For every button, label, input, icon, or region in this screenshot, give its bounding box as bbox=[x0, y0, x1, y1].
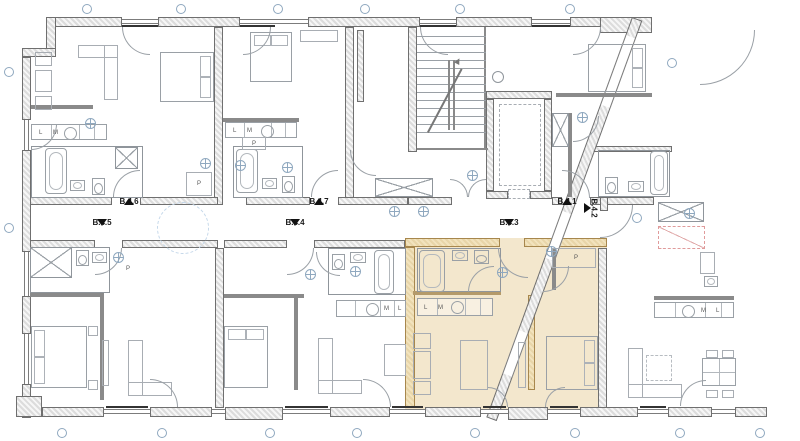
wall bbox=[16, 396, 42, 417]
grid-marker bbox=[57, 428, 67, 438]
furniture-symbol bbox=[384, 344, 406, 376]
shaft-cross-symbol bbox=[375, 178, 433, 197]
furniture-symbol bbox=[518, 342, 526, 388]
wall bbox=[22, 57, 31, 120]
wall bbox=[224, 240, 287, 248]
appliance-letter: M bbox=[53, 130, 58, 136]
furniture-symbol bbox=[413, 333, 431, 349]
furniture-symbol bbox=[700, 252, 715, 274]
entry-direction-triangle bbox=[562, 198, 572, 205]
wardrobe-dashed-symbol bbox=[658, 226, 705, 249]
grid-marker bbox=[360, 4, 370, 14]
door-arc bbox=[450, 179, 468, 197]
grid-marker bbox=[82, 4, 92, 14]
bed-symbol bbox=[160, 52, 214, 102]
window bbox=[24, 120, 29, 150]
appliance-letter: L bbox=[716, 308, 719, 314]
grid-marker bbox=[352, 428, 362, 438]
bathtub-symbol bbox=[650, 151, 668, 195]
furniture-symbol bbox=[88, 326, 98, 336]
furniture-symbol bbox=[706, 390, 718, 398]
partition-wall bbox=[417, 148, 488, 150]
appliance-letter: M bbox=[701, 308, 706, 314]
grid-marker bbox=[667, 58, 677, 68]
door-arc bbox=[316, 252, 340, 276]
wall bbox=[48, 17, 122, 27]
window bbox=[390, 409, 425, 414]
wall bbox=[580, 407, 638, 417]
threshold bbox=[106, 406, 148, 408]
wall bbox=[308, 17, 420, 27]
entry-direction-triangle bbox=[290, 219, 300, 226]
shaft bbox=[552, 113, 569, 147]
grid-marker bbox=[4, 67, 14, 77]
kitchen-counter-symbol bbox=[417, 298, 493, 316]
unit-label-u46: B.4.6 bbox=[112, 198, 146, 206]
window bbox=[283, 409, 330, 414]
bed-symbol bbox=[31, 326, 87, 388]
appliance-letter: P bbox=[574, 255, 578, 261]
elevator-door bbox=[508, 189, 530, 199]
unit-label-u43: B.4.3 bbox=[492, 219, 526, 227]
appliance-letter: P bbox=[252, 141, 256, 147]
partition-wall bbox=[30, 293, 104, 297]
furniture-symbol bbox=[722, 350, 734, 358]
grid-marker bbox=[675, 428, 685, 438]
window bbox=[212, 409, 225, 414]
highlighted-unit-wall bbox=[524, 238, 607, 247]
entry-direction-triangle bbox=[97, 219, 107, 226]
door-tag-marker bbox=[497, 267, 508, 278]
furniture-symbol bbox=[35, 70, 52, 92]
appliance-letter: M bbox=[247, 128, 252, 134]
unit-label-u45: B.4.5 bbox=[85, 219, 119, 227]
door-tag-marker bbox=[282, 162, 293, 173]
entry-direction-triangle bbox=[584, 203, 591, 213]
sink-symbol bbox=[262, 178, 277, 189]
toilet-symbol bbox=[92, 178, 105, 195]
window bbox=[122, 19, 158, 24]
wall bbox=[150, 407, 212, 417]
furniture-symbol bbox=[628, 384, 682, 398]
window bbox=[481, 409, 508, 414]
sink-symbol bbox=[628, 181, 644, 192]
shaft-cross-symbol bbox=[30, 247, 72, 278]
furniture-symbol bbox=[706, 350, 718, 358]
door-arc bbox=[150, 379, 178, 407]
partition-wall bbox=[654, 296, 734, 300]
sink-symbol bbox=[350, 252, 366, 263]
wall bbox=[338, 197, 408, 205]
furniture-symbol bbox=[35, 52, 52, 66]
bathtub-symbol bbox=[236, 149, 258, 193]
partition-wall bbox=[294, 296, 298, 390]
door-tag-marker bbox=[684, 208, 695, 219]
shaft-cross-symbol bbox=[115, 147, 138, 169]
highlighted-unit-wall bbox=[405, 238, 500, 247]
bathtub-symbol bbox=[45, 148, 67, 194]
unit-label-u47: B.4.7 bbox=[302, 198, 336, 206]
window bbox=[24, 334, 29, 384]
unit-label-u41: B.4.1 bbox=[550, 198, 584, 206]
threshold bbox=[532, 25, 570, 27]
elevator-car bbox=[499, 104, 541, 186]
stair-rail bbox=[453, 60, 455, 130]
grid-marker bbox=[273, 4, 283, 14]
shaft-cross-symbol bbox=[658, 202, 704, 222]
door-tag-marker bbox=[418, 206, 429, 217]
door-tag-marker bbox=[85, 118, 96, 129]
door-tag-marker bbox=[389, 206, 400, 217]
wall bbox=[486, 91, 552, 99]
door-arc bbox=[468, 179, 486, 197]
grid-marker bbox=[455, 4, 465, 14]
wall bbox=[345, 27, 354, 205]
grid-marker bbox=[755, 428, 765, 438]
threshold bbox=[285, 406, 328, 408]
door-arc bbox=[122, 27, 150, 55]
bathtub-symbol bbox=[419, 250, 445, 292]
door-tag-marker bbox=[235, 160, 246, 171]
wall bbox=[215, 248, 224, 408]
door-tag-marker bbox=[113, 252, 124, 263]
wall bbox=[214, 27, 223, 205]
grid-marker bbox=[4, 223, 14, 233]
furniture-symbol bbox=[413, 351, 431, 379]
appliance-letter: L bbox=[39, 130, 42, 136]
appliance-letter: L bbox=[424, 305, 427, 311]
unit-label-u42: B.4.2 bbox=[584, 204, 618, 212]
window bbox=[240, 19, 308, 24]
wall bbox=[486, 191, 508, 199]
window bbox=[532, 19, 570, 24]
furniture-symbol bbox=[413, 381, 431, 395]
window bbox=[24, 252, 29, 296]
wall bbox=[408, 27, 417, 152]
wall bbox=[598, 248, 607, 408]
floor-plan: B.4.6B.4.7B.4.1B.4.5B.4.4B.4.3B.4.2LMLMM… bbox=[0, 0, 800, 441]
toilet-symbol bbox=[605, 177, 618, 194]
wall bbox=[486, 99, 494, 191]
toilet-symbol bbox=[474, 250, 489, 264]
furniture-symbol bbox=[104, 45, 118, 100]
entry-direction-triangle bbox=[124, 198, 134, 205]
door-tag-marker bbox=[350, 266, 361, 277]
grid-marker bbox=[265, 428, 275, 438]
furniture-symbol bbox=[88, 380, 98, 390]
furniture-symbol bbox=[300, 30, 338, 42]
wall bbox=[408, 197, 452, 205]
wall bbox=[22, 296, 31, 334]
sink-symbol bbox=[704, 276, 718, 287]
furniture-symbol bbox=[460, 340, 488, 390]
unit-label-u44: B.4.4 bbox=[278, 219, 312, 227]
sink-symbol bbox=[70, 180, 85, 191]
bed-symbol bbox=[546, 336, 598, 390]
threshold bbox=[640, 406, 666, 408]
wall bbox=[530, 191, 552, 199]
table-symbol bbox=[702, 358, 736, 386]
appliance-letter: M bbox=[384, 306, 389, 312]
furniture-symbol bbox=[102, 340, 109, 386]
appliance-letter: P bbox=[126, 266, 130, 272]
kitchen-counter-symbol bbox=[336, 300, 406, 317]
corridor-dashed-circle bbox=[157, 202, 209, 254]
bed-symbol bbox=[224, 326, 268, 388]
wall bbox=[330, 407, 390, 417]
toilet-symbol bbox=[76, 250, 89, 266]
door-arc bbox=[311, 170, 338, 197]
grid-marker bbox=[565, 4, 575, 14]
wall bbox=[425, 407, 481, 417]
sink-symbol bbox=[452, 250, 468, 261]
wall bbox=[735, 407, 767, 417]
grid-marker bbox=[157, 428, 167, 438]
furniture-symbol bbox=[318, 380, 362, 394]
window bbox=[712, 409, 735, 414]
wall bbox=[456, 17, 532, 27]
furniture-symbol bbox=[35, 96, 52, 110]
bed-symbol bbox=[588, 44, 646, 92]
grid-marker bbox=[176, 4, 186, 14]
appliance-letter: P bbox=[197, 181, 201, 187]
wall bbox=[158, 17, 240, 27]
door-tag-marker bbox=[467, 170, 478, 181]
door-tag-marker bbox=[577, 112, 588, 123]
door-tag-marker bbox=[546, 246, 557, 257]
toilet-symbol bbox=[282, 176, 295, 193]
partition-wall bbox=[556, 93, 652, 97]
appliance-letter: L bbox=[398, 306, 401, 312]
entry-direction-triangle bbox=[504, 219, 514, 226]
wall bbox=[314, 240, 405, 248]
wall bbox=[668, 407, 712, 417]
threshold bbox=[392, 406, 423, 408]
rug-symbol bbox=[646, 355, 672, 381]
door-tag-marker bbox=[200, 158, 211, 169]
furniture-symbol bbox=[722, 390, 734, 398]
door-arc bbox=[680, 380, 706, 406]
wall bbox=[357, 30, 364, 102]
wall bbox=[544, 99, 552, 191]
window bbox=[548, 409, 580, 414]
wall bbox=[42, 407, 104, 417]
grid-marker bbox=[632, 213, 642, 223]
appliance-letter: M bbox=[438, 305, 443, 311]
entry-direction-triangle bbox=[314, 198, 324, 205]
wall bbox=[225, 407, 283, 420]
appliance-letter: L bbox=[233, 128, 236, 134]
grid-marker bbox=[570, 428, 580, 438]
kitchen-counter-symbol bbox=[654, 302, 734, 318]
window bbox=[104, 409, 150, 414]
wall bbox=[246, 197, 310, 205]
door-arc bbox=[700, 30, 755, 85]
wall bbox=[508, 407, 548, 420]
partition-wall bbox=[224, 294, 304, 298]
column bbox=[492, 71, 504, 83]
wall bbox=[30, 197, 112, 205]
bathtub-symbol bbox=[374, 250, 394, 294]
door-arc bbox=[363, 379, 391, 407]
window bbox=[420, 19, 456, 24]
grid-marker bbox=[470, 428, 480, 438]
door-tag-marker bbox=[305, 269, 316, 280]
window bbox=[638, 409, 668, 414]
